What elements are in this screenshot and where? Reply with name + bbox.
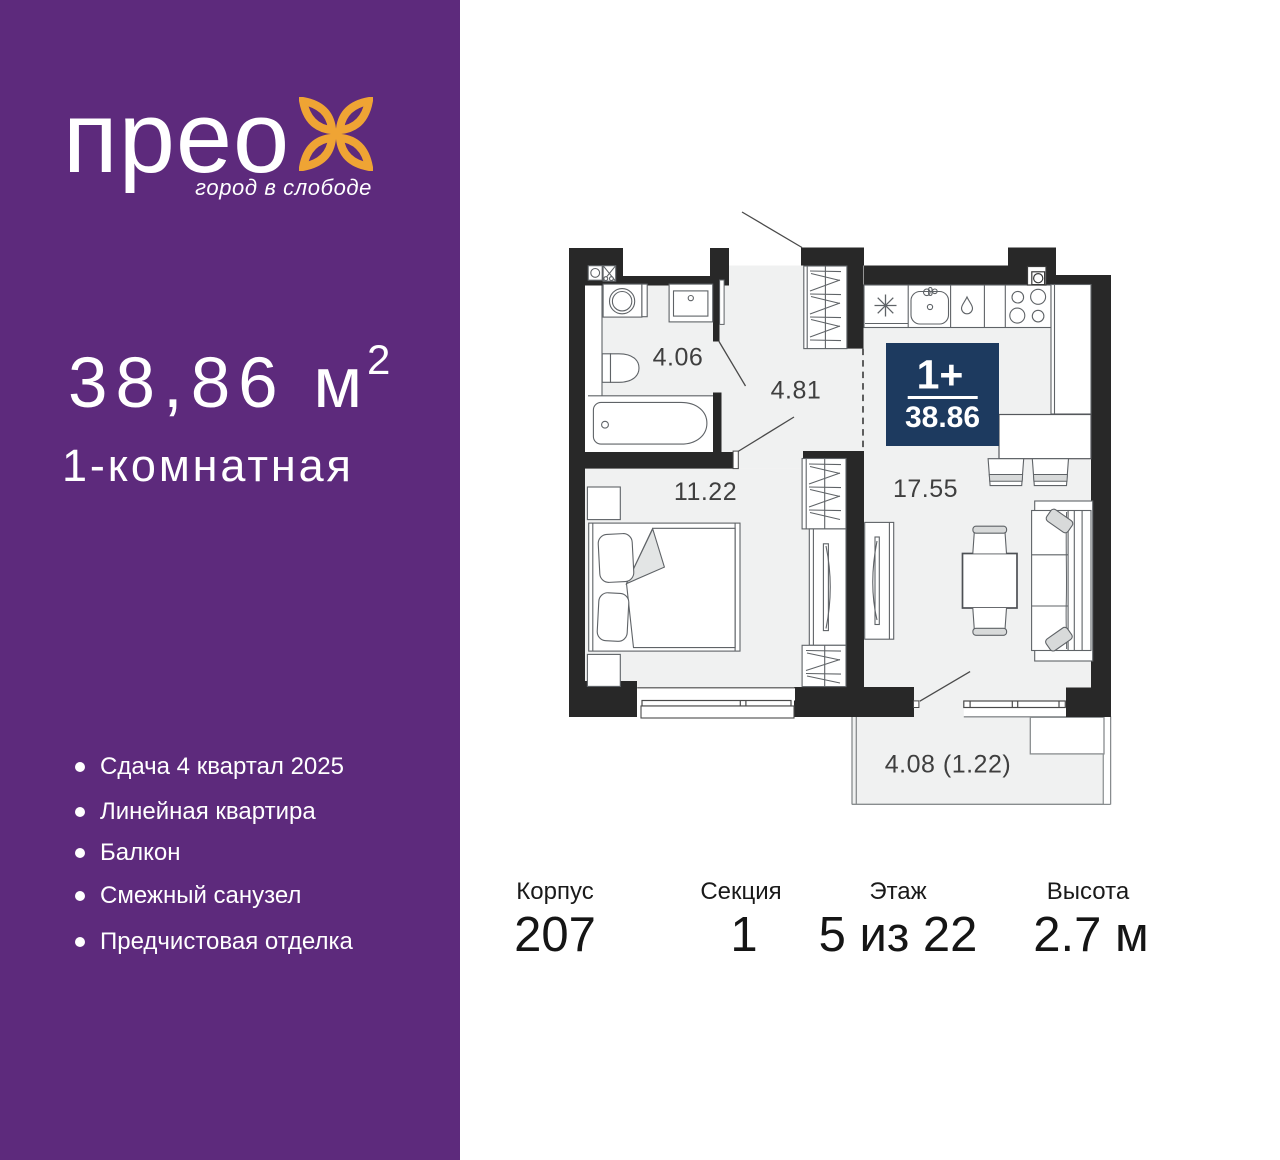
svg-text:1+: 1+: [917, 352, 964, 398]
svg-text:17.55: 17.55: [893, 475, 958, 503]
svg-text:11.22: 11.22: [674, 478, 737, 506]
svg-text:4.06: 4.06: [653, 344, 704, 372]
svg-text:4.08 (1.22): 4.08 (1.22): [885, 751, 1011, 779]
svg-text:38.86: 38.86: [905, 401, 980, 434]
svg-text:4.81: 4.81: [771, 377, 822, 405]
